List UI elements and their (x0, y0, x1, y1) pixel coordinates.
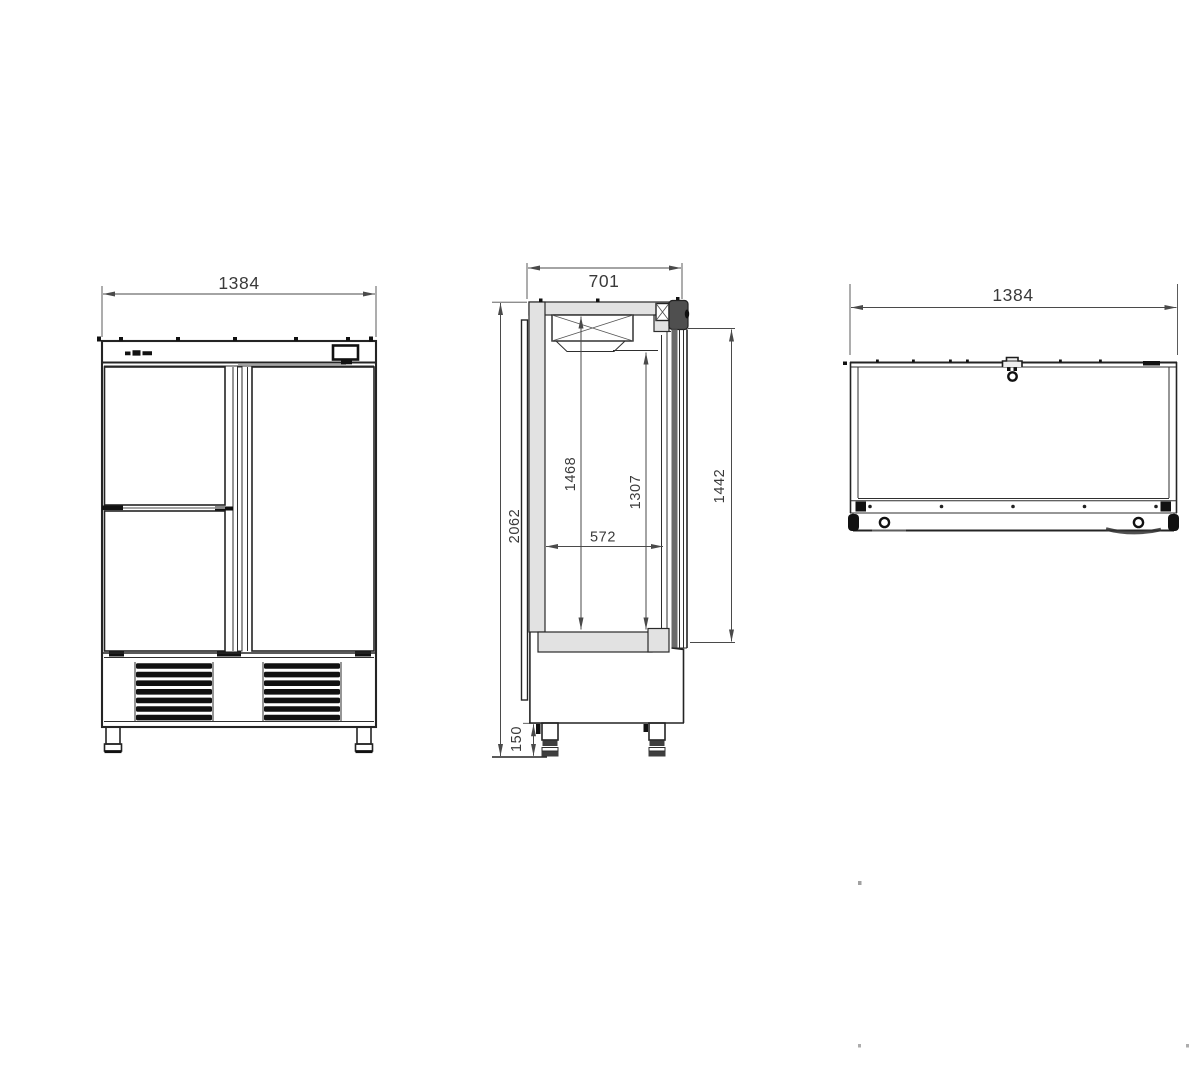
screw-dot (1083, 505, 1087, 509)
latch-hole-ring (1008, 372, 1016, 380)
dim-text-side-depth: 701 (589, 271, 620, 291)
hinge-rail (850, 499, 1177, 514)
dim-text-side-height: 2062 (507, 509, 523, 544)
drip-tray (556, 341, 625, 352)
dim-text-interior-depth: 572 (590, 530, 616, 546)
dim-side-depth: 701 (527, 263, 682, 299)
dim-front-overall-width: 1384 (102, 273, 376, 337)
base-front-edge (672, 648, 684, 723)
evaporator-box (552, 315, 633, 352)
screw-dot (868, 505, 872, 509)
front-leg-left (105, 727, 122, 753)
side-view: 701 2062 150 (492, 263, 735, 757)
dim-text-front-width: 1384 (218, 273, 259, 293)
interior-floor (538, 632, 652, 652)
screw-dot (1011, 505, 1015, 509)
dim-interior-depth: 572 (546, 530, 663, 547)
screw-dot (940, 505, 944, 509)
ventilation-grille-left (135, 662, 213, 722)
control-panel-display (333, 346, 358, 360)
door-right (252, 367, 374, 651)
dim-text-top-width: 1384 (992, 285, 1033, 305)
hinge-detail-box (656, 304, 669, 321)
dim-interior-height-front: 1307 (628, 353, 646, 630)
foot-hole-ring (880, 518, 889, 527)
dim-top-overall-width: 1384 (850, 284, 1178, 355)
front-leg-right (356, 727, 373, 753)
dim-text-interior-height-front: 1307 (628, 475, 644, 510)
door-bottom-left (105, 511, 226, 651)
ventilation-grille-right (263, 662, 341, 722)
base-plinth (102, 653, 376, 722)
side-leg-rear (542, 723, 559, 757)
center-mullion (233, 367, 248, 651)
top-view: 1384 (843, 284, 1179, 533)
scan-artifacts (858, 881, 1189, 1048)
door-profile (672, 330, 688, 649)
top-body-outline (850, 362, 1177, 513)
leg-brackets (536, 724, 648, 734)
door-handle-marks (102, 506, 371, 657)
top-insulation (529, 302, 669, 315)
door-sill (648, 629, 669, 653)
hinge-pin (685, 310, 689, 319)
brand-logo-mark (125, 350, 152, 355)
dim-door-height: 1442 (688, 329, 735, 643)
dim-text-door-height: 1442 (712, 469, 728, 504)
technical-drawing: 1384 (0, 0, 1200, 1080)
rear-panel (522, 320, 528, 700)
header-band (102, 346, 376, 367)
door-top-left (105, 367, 226, 505)
control-panel-mark (341, 361, 352, 365)
drawing-canvas: 1384 (0, 0, 1200, 1080)
dim-interior-height-rear: 1468 (563, 317, 581, 630)
cabinet-outline (102, 341, 376, 727)
rear-insulation-wall (529, 302, 545, 632)
dim-text-leg-height: 150 (509, 726, 525, 752)
latch-bracket (1003, 358, 1023, 372)
front-view: 1384 (97, 273, 376, 753)
foot-hole-ring (1134, 518, 1143, 527)
screw-dot (1154, 505, 1158, 509)
dim-text-interior-height-rear: 1468 (563, 457, 579, 492)
bottom-band (848, 513, 1179, 533)
side-leg-front (649, 723, 666, 757)
